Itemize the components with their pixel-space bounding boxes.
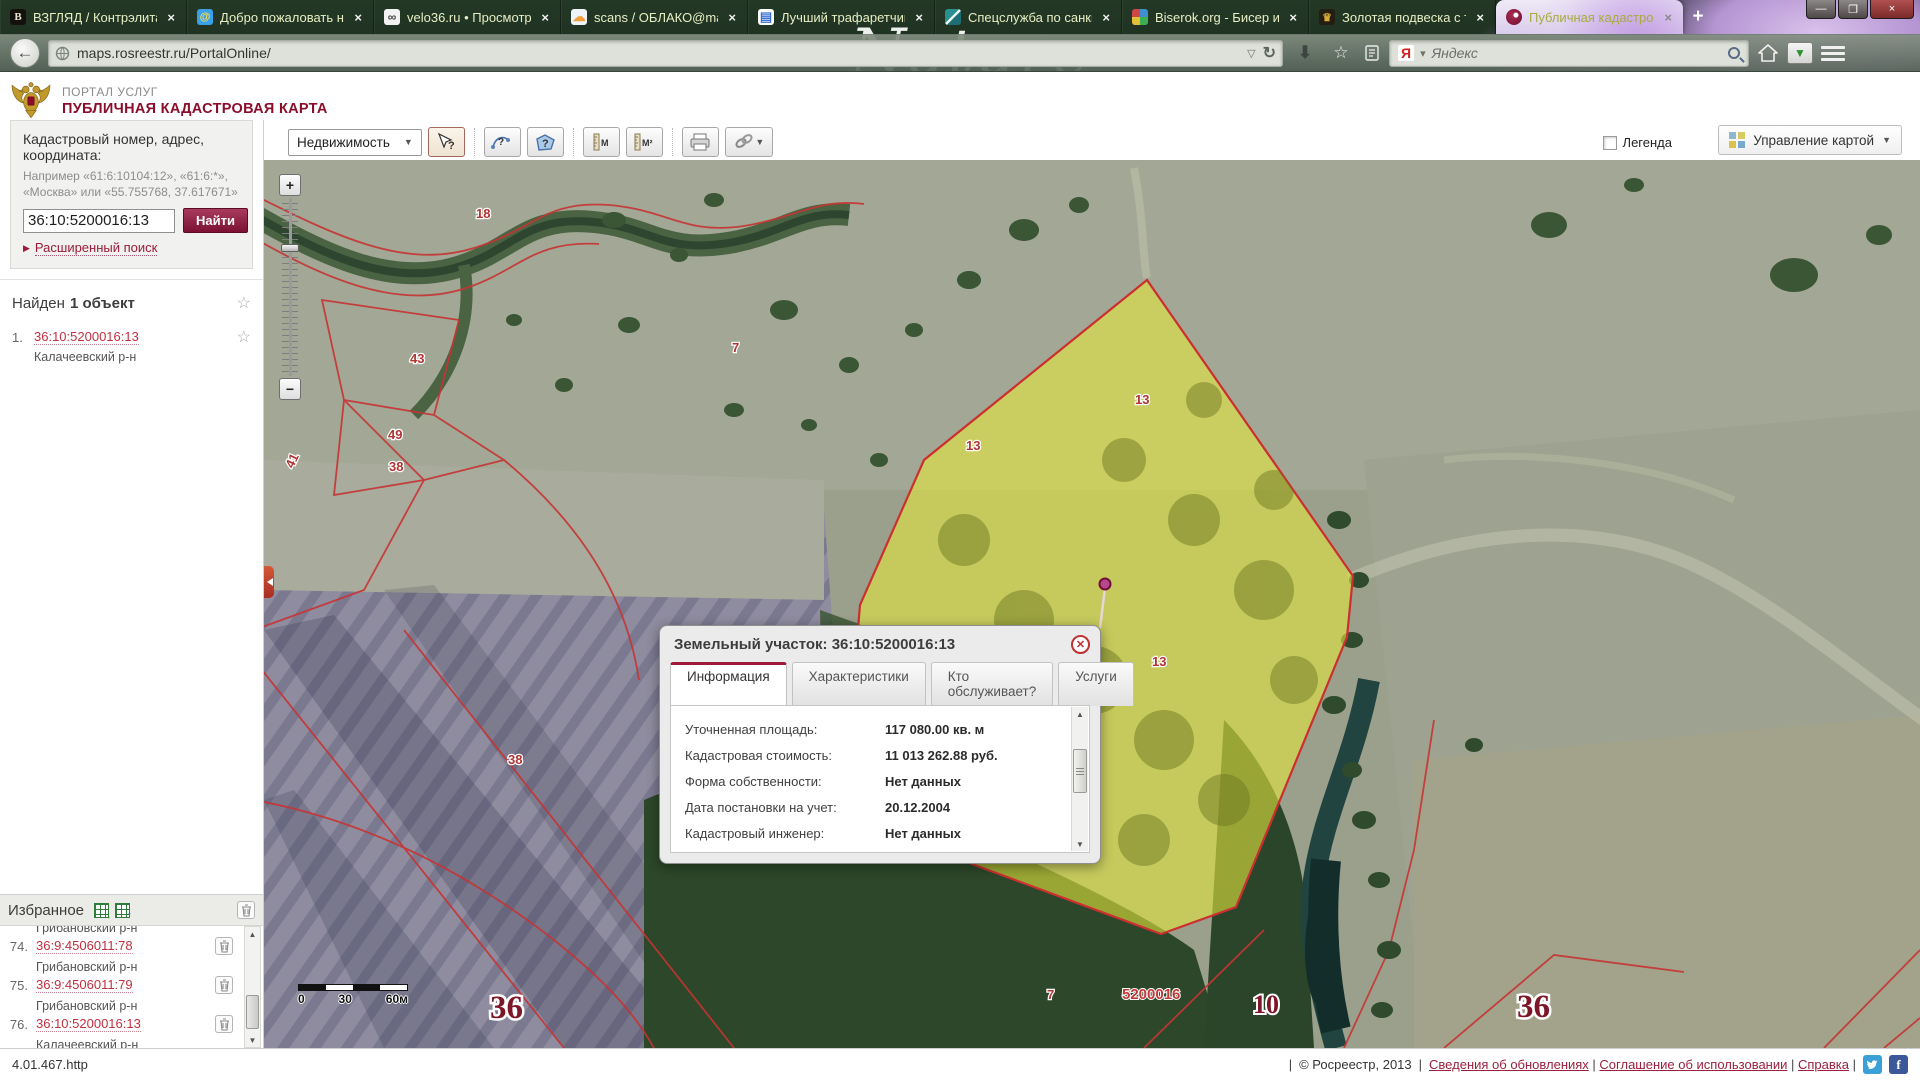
- popup-info-row: Дата постановки на учет:20.12.2004: [685, 794, 1063, 820]
- results-header: Найден 1 объект ☆: [0, 279, 263, 323]
- tab-close-icon[interactable]: ×: [538, 10, 552, 25]
- restore-button[interactable]: ❐: [1838, 0, 1868, 19]
- popup-title: Земельный участок: 36:10:5200016:13: [674, 636, 955, 653]
- popup-close-icon[interactable]: ✕: [1071, 635, 1090, 654]
- zoom-slider-thumb[interactable]: [281, 244, 299, 252]
- printer-icon: [688, 132, 712, 152]
- map-label: 49: [388, 427, 402, 442]
- browser-tab[interactable]: Спецслужба по санкц...×: [935, 0, 1122, 34]
- at-favicon-icon: @: [197, 9, 213, 25]
- delete-favorite-button[interactable]: [215, 1015, 233, 1033]
- map-label: 13: [966, 438, 980, 453]
- svg-text:М: М: [601, 138, 609, 148]
- url-text[interactable]: maps.rosreestr.ru/PortalOnline/: [77, 45, 1240, 61]
- info-value: Нет данных: [885, 826, 961, 841]
- search-label: Кадастровый номер, адрес, координата:: [23, 131, 240, 163]
- map-label: 7: [732, 340, 739, 355]
- url-dropdown-icon[interactable]: ▽: [1247, 47, 1255, 60]
- map-label: 18: [476, 206, 490, 221]
- browser-tab[interactable]: ∞velo36.ru • Просмотр т...×: [374, 0, 561, 34]
- map-label: 13: [1152, 654, 1166, 669]
- tab-title: scans / ОБЛАКО@mail...: [594, 10, 718, 25]
- results-count: 1 объект: [70, 295, 135, 312]
- zoom-in-button[interactable]: +: [279, 174, 301, 196]
- scale-bar-segments: [298, 984, 408, 991]
- scroll-up-icon[interactable]: ▲: [245, 927, 260, 941]
- browser-tab[interactable]: Biserok.org - Бисер и б...×: [1122, 0, 1309, 34]
- browser-tab[interactable]: ☁scans / ОБЛАКО@mail...×: [561, 0, 748, 34]
- browser-tab[interactable]: ♛Золотая подвеска с то...×: [1309, 0, 1496, 34]
- legend-toggle[interactable]: Легенда: [1603, 135, 1672, 150]
- map-label: 36: [1517, 989, 1550, 1025]
- legend-label: Легенда: [1623, 135, 1672, 150]
- zoom-control: + −: [278, 174, 302, 400]
- scroll-down-icon[interactable]: ▼: [245, 1033, 260, 1047]
- cadastral-link[interactable]: 36:10:5200016:13: [36, 1016, 141, 1032]
- beads-favicon-icon: [1132, 9, 1148, 25]
- bike-favicon-icon: ∞: [384, 9, 400, 25]
- favorites-section: Избранное Грибановский р-н74.36:9:450601…: [0, 894, 263, 1048]
- clipboard-icon[interactable]: [1363, 44, 1381, 62]
- popup-info-row: Уточненная площадь:117 080.00 кв. м: [685, 716, 1063, 742]
- popup-tab-active[interactable]: Информация: [670, 662, 787, 706]
- map-label: 38: [389, 459, 403, 474]
- status-links: | © Росреестр, 2013 | Сведения об обновл…: [1289, 1055, 1908, 1074]
- info-value: Нет данных: [885, 774, 961, 789]
- triangle-right-icon: ▶: [23, 243, 30, 254]
- facebook-icon[interactable]: f: [1889, 1055, 1908, 1074]
- district-label: Грибановский р-н: [36, 926, 237, 935]
- search-engine-dropdown-icon[interactable]: ▾: [1420, 47, 1426, 60]
- search-field[interactable]: Я ▾ Яндекс: [1389, 40, 1749, 67]
- svg-text:М²: М²: [642, 138, 653, 148]
- popup-scrollbar[interactable]: ▲ ▼: [1071, 707, 1088, 851]
- minimize-button[interactable]: —: [1806, 0, 1836, 19]
- separator: |: [1849, 1057, 1856, 1072]
- map-toolbar: Недвижимость ▼ ? ? ?: [288, 127, 773, 157]
- legend-checkbox[interactable]: [1603, 136, 1617, 150]
- info-value: 117 080.00 кв. м: [885, 722, 984, 737]
- map-label: 7: [1047, 987, 1054, 1002]
- popup-tab-inactive[interactable]: Кто обслуживает?: [931, 662, 1053, 706]
- map-label: 5200016: [1122, 986, 1180, 1003]
- portal-label: ПОРТАЛ УСЛУГ: [62, 85, 328, 99]
- favorite-row: 76.36:10:5200016:13: [6, 1013, 237, 1035]
- ruler-square-meters-icon: М²: [632, 132, 656, 152]
- chevron-down-icon: ▼: [755, 137, 764, 147]
- tab-close-icon[interactable]: ×: [912, 10, 926, 25]
- scroll-up-icon[interactable]: ▲: [1072, 707, 1088, 721]
- favorite-number: 74.: [6, 939, 36, 954]
- search-panel: Кадастровый номер, адрес, координата: На…: [10, 120, 253, 269]
- scale-label-0: 0: [298, 992, 305, 1006]
- svg-text:?: ?: [542, 138, 549, 150]
- result-row: 1.36:10:5200016:13☆: [12, 327, 251, 347]
- rosreestr-logo-block: ПОРТАЛ УСЛУГ ПУБЛИЧНАЯ КАДАСТРОВАЯ КАРТА: [10, 80, 328, 122]
- separator: |: [1787, 1057, 1798, 1072]
- tab-close-icon[interactable]: ×: [1099, 10, 1113, 25]
- parcel-info-popup: Земельный участок: 36:10:5200016:13 ✕ Ин…: [659, 625, 1101, 864]
- globe-icon: [55, 46, 70, 61]
- favorites-scrollbar[interactable]: ▲ ▼: [244, 926, 261, 1048]
- yandex-icon[interactable]: Я: [1398, 45, 1414, 61]
- status-link[interactable]: Соглашение об использовании: [1599, 1057, 1787, 1072]
- tab-close-icon[interactable]: ×: [164, 10, 178, 25]
- favorite-row: 75.36:9:4506011:79: [6, 974, 237, 996]
- status-link[interactable]: Сведения об обновлениях: [1429, 1057, 1589, 1072]
- identify-tool-button[interactable]: ?: [428, 127, 465, 157]
- popup-body: Уточненная площадь:117 080.00 кв. мКадас…: [670, 705, 1090, 853]
- zoom-slider[interactable]: [282, 198, 298, 376]
- status-link[interactable]: Справка: [1798, 1057, 1849, 1072]
- tab-close-icon[interactable]: ×: [1661, 10, 1675, 25]
- tab-title: velo36.ru • Просмотр т...: [407, 10, 531, 25]
- search-hint-1: Например «61:6:10104:12», «61:6:*»,: [23, 168, 240, 184]
- browser-chrome: Nature ВВЗГЛЯД / Контрэлита×@Добро пожал…: [0, 0, 1920, 72]
- site-header: ПОРТАЛ УСЛУГ ПУБЛИЧНАЯ КАДАСТРОВАЯ КАРТА…: [0, 72, 1920, 160]
- share-link-button[interactable]: ▼: [725, 127, 773, 157]
- popup-tab-inactive[interactable]: Характеристики: [792, 662, 926, 706]
- favorites-list: Грибановский р-н74.36:9:4506011:78Грибан…: [0, 926, 263, 1048]
- eagle-logo-icon: [10, 80, 52, 122]
- map-label: 10: [1253, 990, 1279, 1019]
- favorite-number: 75.: [6, 978, 36, 993]
- address-bar[interactable]: maps.rosreestr.ru/PortalOnline/ ▽ ↻: [48, 40, 1283, 67]
- svg-text:?: ?: [498, 137, 504, 148]
- popup-info-row: Кадастровая стоимость:11 013 262.88 руб.: [685, 742, 1063, 768]
- tab-title: Спецслужба по санкц...: [968, 10, 1092, 25]
- popup-info-row: Кадастровый инженер:Нет данных: [685, 820, 1063, 846]
- curve-question-icon: ?: [490, 132, 514, 152]
- download-manager-button[interactable]: ▼: [1787, 42, 1813, 64]
- info-value: 11 013 262.88 руб.: [885, 748, 998, 763]
- result-number: 1.: [12, 330, 34, 345]
- cadastral-link[interactable]: 36:9:4506011:79: [36, 977, 133, 993]
- twitter-icon[interactable]: [1863, 1055, 1882, 1074]
- teal-favicon-icon: [945, 9, 961, 25]
- window-controls: — ❐ ×: [1806, 0, 1914, 19]
- version-text: 4.01.467.http: [12, 1057, 88, 1072]
- search-placeholder[interactable]: Яндекс: [1432, 45, 1722, 61]
- browser-tab[interactable]: @Добро пожаловать на ...×: [187, 0, 374, 34]
- results-count-prefix: Найден: [12, 295, 65, 312]
- tab-title: Золотая подвеска с то...: [1342, 10, 1466, 25]
- favorite-star-icon[interactable]: ☆: [237, 293, 251, 313]
- export-excel-icon[interactable]: [94, 903, 109, 918]
- back-button[interactable]: ←: [10, 38, 40, 68]
- chevron-down-icon: ▼: [1882, 135, 1891, 145]
- separator: |: [1589, 1057, 1600, 1072]
- favorite-number: 76.: [6, 1017, 36, 1032]
- browser-tab[interactable]: Публичная кадастров...×: [1496, 0, 1683, 34]
- scale-bar: 0 30 60м: [298, 984, 408, 1006]
- scrollbar-thumb[interactable]: [246, 995, 259, 1029]
- clear-favorites-button[interactable]: [237, 901, 255, 919]
- home-icon[interactable]: [1757, 43, 1779, 63]
- map-label: 13: [1135, 392, 1149, 407]
- tab-title: Добро пожаловать на ...: [220, 10, 344, 25]
- tab-close-icon[interactable]: ×: [725, 10, 739, 25]
- map-canvas[interactable]: 184349384171313133875200016103636: [264, 160, 1920, 1048]
- reload-icon[interactable]: ↻: [1263, 43, 1276, 63]
- scale-label-60: 60м: [386, 992, 408, 1006]
- info-label: Уточненная площадь:: [685, 722, 885, 737]
- doc-favicon-icon: ▤: [758, 9, 774, 25]
- favorites-title: Избранное: [8, 902, 84, 919]
- tab-title: Публичная кадастров...: [1529, 10, 1654, 25]
- map-layers-icon: [1729, 132, 1745, 148]
- realty-type-dropdown[interactable]: Недвижимость ▼: [288, 129, 422, 156]
- cadastral-link[interactable]: 36:10:5200016:13: [34, 329, 139, 345]
- info-value: 20.12.2004: [885, 800, 950, 815]
- results-list: 1.36:10:5200016:13☆Калачеевский р-н: [0, 323, 263, 368]
- vz-favicon-icon: В: [10, 9, 26, 25]
- delete-favorite-button[interactable]: [215, 937, 233, 955]
- measure-length-button[interactable]: М: [583, 127, 620, 157]
- favorites-header: Избранное: [0, 895, 263, 926]
- district-label: Грибановский р-н: [36, 957, 237, 974]
- identify-area-button[interactable]: ?: [527, 127, 564, 157]
- cloud-favicon-icon: ☁: [571, 9, 587, 25]
- browser-tab[interactable]: ▤Лучший трафаретчик ...×: [748, 0, 935, 34]
- advanced-search-label: Расширенный поиск: [35, 240, 157, 256]
- tab-title: ВЗГЛЯД / Контрэлита: [33, 10, 157, 25]
- delete-favorite-button[interactable]: [215, 976, 233, 994]
- measure-path-button[interactable]: ?: [484, 127, 521, 157]
- popup-tabs: ИнформацияХарактеристикиКто обслуживает?…: [660, 662, 1100, 706]
- chain-link-icon: [733, 133, 755, 151]
- navigation-bar: ← maps.rosreestr.ru/PortalOnline/ ▽ ↻ ⬇ …: [0, 34, 1920, 72]
- import-excel-icon[interactable]: [115, 903, 130, 918]
- cursor-question-icon: ?: [435, 132, 457, 152]
- bookmark-star-icon[interactable]: ☆: [1327, 43, 1355, 63]
- tab-title: Biserok.org - Бисер и б...: [1155, 10, 1279, 25]
- browser-tab[interactable]: ВВЗГЛЯД / Контрэлита×: [0, 0, 187, 34]
- map-viewport[interactable]: 184349384171313133875200016103636 + − 0 …: [264, 160, 1920, 1048]
- sidebar: Кадастровый номер, адрес, координата: На…: [0, 120, 264, 1048]
- tab-close-icon[interactable]: ×: [1473, 10, 1487, 25]
- map-manage-label: Управление картой: [1753, 133, 1874, 148]
- sidebar-collapse-handle[interactable]: [264, 566, 274, 598]
- advanced-search-link[interactable]: ▶ Расширенный поиск: [23, 240, 157, 256]
- search-icon[interactable]: [1728, 47, 1740, 59]
- info-label: Форма собственности:: [685, 774, 885, 789]
- tab-title: Лучший трафаретчик ...: [781, 10, 905, 25]
- status-bar: 4.01.467.http | © Росреестр, 2013 | Свед…: [0, 1048, 1920, 1080]
- result-item: 1.36:10:5200016:13☆Калачеевский р-н: [0, 323, 263, 368]
- favorite-star-icon[interactable]: ☆: [237, 327, 251, 347]
- district-label: Калачеевский р-н: [36, 1035, 237, 1048]
- page-title: ПУБЛИЧНАЯ КАДАСТРОВАЯ КАРТА: [62, 101, 328, 117]
- info-label: Дата постановки на учет:: [685, 800, 885, 815]
- info-label: Кадастровый инженер:: [685, 826, 885, 841]
- ruler-meters-icon: М: [590, 132, 612, 152]
- map-label: 38: [508, 752, 522, 767]
- print-button[interactable]: [682, 127, 719, 157]
- map-label: 43: [410, 351, 424, 366]
- search-hint-2: «Москва» или «55.755768, 37.617671»: [23, 184, 240, 200]
- favorite-row: 74.36:9:4506011:78: [6, 935, 237, 957]
- tab-close-icon[interactable]: ×: [1286, 10, 1300, 25]
- measure-area-button[interactable]: М²: [626, 127, 663, 157]
- ros-favicon-icon: [1506, 9, 1522, 25]
- district-label: Калачеевский р-н: [34, 347, 251, 364]
- tab-close-icon[interactable]: ×: [351, 10, 365, 25]
- cadastral-search-input[interactable]: [23, 209, 175, 233]
- map-label: 36: [490, 990, 523, 1026]
- scroll-down-icon[interactable]: ▼: [1072, 837, 1088, 851]
- cadastral-link[interactable]: 36:9:4506011:78: [36, 938, 133, 954]
- scrollbar-thumb[interactable]: [1073, 749, 1087, 793]
- district-label: Грибановский р-н: [36, 996, 237, 1013]
- info-label: Кадастровая стоимость:: [685, 748, 885, 763]
- gold-favicon-icon: ♛: [1319, 9, 1335, 25]
- chevron-down-icon: ▼: [404, 137, 413, 147]
- popup-tab-inactive[interactable]: Услуги: [1058, 662, 1134, 706]
- zoom-out-button[interactable]: −: [279, 378, 301, 400]
- polygon-question-icon: ?: [533, 132, 557, 152]
- realty-type-value: Недвижимость: [297, 135, 390, 150]
- scale-label-30: 30: [339, 992, 352, 1006]
- parcel-marker[interactable]: [1100, 579, 1111, 590]
- copyright-text: © Росреестр, 2013: [1299, 1057, 1412, 1072]
- svg-text:?: ?: [448, 140, 455, 152]
- new-tab-button[interactable]: +: [1683, 0, 1713, 34]
- map-manage-button[interactable]: Управление картой ▼: [1718, 125, 1902, 155]
- popup-info-row: Форма собственности:Нет данных: [685, 768, 1063, 794]
- find-button[interactable]: Найти: [183, 208, 248, 233]
- close-window-button[interactable]: ×: [1870, 0, 1914, 19]
- tab-bar: ВВЗГЛЯД / Контрэлита×@Добро пожаловать н…: [0, 0, 1920, 34]
- menu-icon[interactable]: [1821, 46, 1845, 61]
- downloads-icon[interactable]: ⬇: [1291, 43, 1319, 63]
